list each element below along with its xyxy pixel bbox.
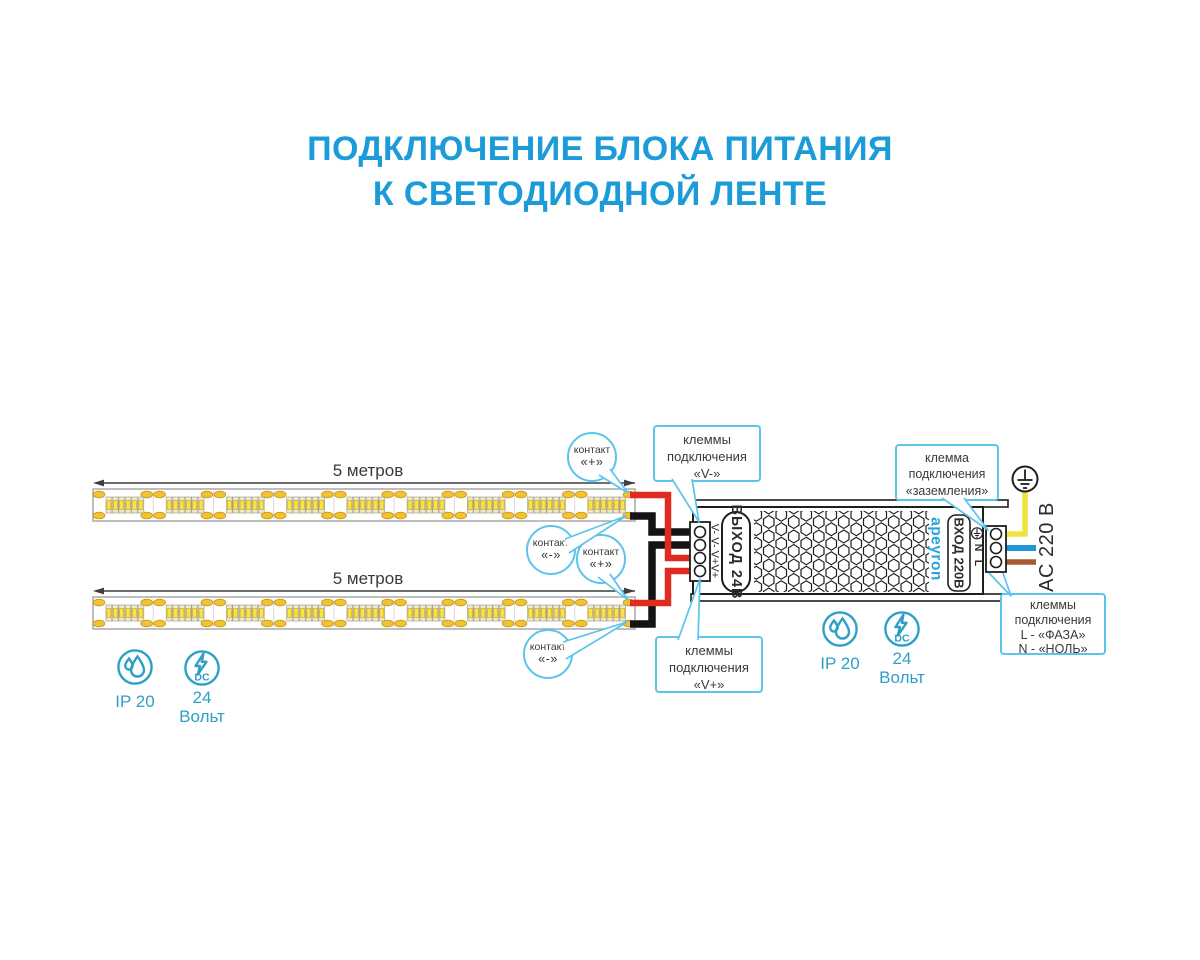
terminal-v-plus-2: [695, 566, 706, 577]
callout-text: подключения: [657, 659, 761, 676]
led-chip: [246, 605, 252, 621]
led-chip: [594, 605, 600, 621]
led-chip: [553, 497, 559, 513]
callout-contact-plus-2: контакт «+»: [576, 534, 626, 584]
led-chip: [620, 497, 626, 513]
led-chip: [528, 497, 534, 513]
led-chip: [487, 497, 493, 513]
led-chip: [553, 605, 559, 621]
led-chip: [601, 605, 607, 621]
led-chip: [106, 497, 112, 513]
led-chip: [252, 605, 258, 621]
led-chip: [312, 605, 318, 621]
terminal-v-minus-2: [695, 540, 706, 551]
led-chip: [192, 497, 198, 513]
solder-pad: [335, 620, 347, 627]
callout-text: подключения: [897, 466, 997, 482]
callout-text: «-»: [541, 549, 561, 563]
solder-pad: [154, 512, 166, 519]
led-chip: [547, 497, 553, 513]
led-chip: [594, 497, 600, 513]
dimension-strip-1: 5 метров: [93, 461, 635, 486]
led-chip: [226, 605, 232, 621]
solder-pad: [395, 491, 407, 498]
led-chip: [426, 497, 432, 513]
callout-text: «V+»: [657, 676, 761, 693]
led-chip: [306, 497, 312, 513]
led-chip: [601, 497, 607, 513]
callout-terminals-phase-null: клеммы подключения L - «ФАЗА» N - «НОЛЬ»: [1000, 593, 1106, 655]
callout-text: «+»: [590, 558, 613, 572]
psu-vent-grille: [754, 511, 929, 592]
solder-pad: [455, 620, 467, 627]
dc-label: DC: [894, 633, 910, 645]
led-chip: [306, 605, 312, 621]
led-chip: [319, 605, 325, 621]
voltage-unit-label: Вольт: [179, 708, 225, 727]
solder-pad: [93, 620, 105, 627]
led-chip: [287, 605, 293, 621]
callout-text: «-»: [538, 653, 558, 667]
led-chip: [179, 497, 185, 513]
water-drop-icon: [821, 610, 859, 648]
led-chip: [198, 497, 204, 513]
ip-rating-label: IP 20: [820, 654, 859, 674]
led-chip: [138, 605, 144, 621]
led-chip: [319, 497, 325, 513]
callout-text: клеммы: [655, 431, 759, 448]
led-chip: [353, 605, 359, 621]
terminal-n: [991, 543, 1002, 554]
callout-contact-plus-1: контакт «+»: [567, 432, 617, 482]
led-chip: [293, 497, 299, 513]
led-chip: [366, 605, 372, 621]
led-chip: [132, 497, 138, 513]
solder-pad: [214, 599, 226, 606]
led-chip: [493, 497, 499, 513]
badge-ip20-strip: IP 20: [99, 648, 171, 712]
callout-text: клемма: [897, 450, 997, 466]
solder-pad: [93, 491, 105, 498]
led-chip: [166, 497, 172, 513]
solder-pad: [515, 599, 527, 606]
solder-pad: [154, 599, 166, 606]
callout-text: N - «НОЛЬ»: [1002, 642, 1104, 657]
callout-text: L - «ФАЗА»: [1002, 628, 1104, 643]
voltage-label: 24: [179, 689, 225, 708]
callout-text: клеммы: [657, 642, 761, 659]
solder-pad: [154, 491, 166, 498]
psu-brand-logo: apeyron: [928, 517, 945, 581]
led-chip: [439, 497, 445, 513]
solder-pad: [335, 599, 347, 606]
led-chip: [433, 605, 439, 621]
led-chip: [607, 605, 613, 621]
callout-terminals-v-minus: клеммы подключения «V-»: [653, 425, 761, 482]
led-chip: [420, 605, 426, 621]
led-chip: [353, 497, 359, 513]
led-chip: [287, 497, 293, 513]
led-chip: [607, 497, 613, 513]
badge-24v-strip: DC 24 Вольт: [166, 649, 238, 726]
led-chip: [420, 497, 426, 513]
solder-pad: [154, 620, 166, 627]
led-chip: [467, 497, 473, 513]
solder-pad: [274, 620, 286, 627]
page-title: ПОДКЛЮЧЕНИЕ БЛОКА ПИТАНИЯ К СВЕТОДИОДНОЙ…: [0, 127, 1200, 217]
solder-pad: [335, 512, 347, 519]
led-chip: [547, 605, 553, 621]
led-chip: [125, 605, 131, 621]
led-chip: [620, 605, 626, 621]
led-chip: [166, 605, 172, 621]
led-chip: [246, 497, 252, 513]
led-chip: [540, 497, 546, 513]
led-chip: [414, 497, 420, 513]
led-chip: [347, 497, 353, 513]
led-chip: [226, 497, 232, 513]
led-strip-2: [93, 597, 635, 629]
led-chip: [426, 605, 432, 621]
wire-ground: [1004, 492, 1025, 534]
led-chip: [119, 605, 125, 621]
solder-pad: [395, 599, 407, 606]
solder-pad: [576, 620, 588, 627]
ip-rating-label: IP 20: [115, 692, 154, 712]
led-chip: [192, 605, 198, 621]
led-chip: [252, 497, 258, 513]
led-chip: [499, 497, 505, 513]
voltage-unit-label: Вольт: [879, 669, 925, 688]
led-chip: [414, 605, 420, 621]
led-chip: [499, 605, 505, 621]
led-chip: [173, 605, 179, 621]
solder-pad: [93, 512, 105, 519]
solder-pad: [395, 620, 407, 627]
led-chip: [106, 605, 112, 621]
led-chip: [373, 605, 379, 621]
led-chip: [467, 605, 473, 621]
led-chip: [439, 605, 445, 621]
terminal-v-plus-1: [695, 553, 706, 564]
led-chip: [233, 605, 239, 621]
terminal-earth: [991, 529, 1002, 540]
led-chip: [300, 497, 306, 513]
led-chip: [588, 605, 594, 621]
led-chip: [112, 605, 118, 621]
led-chip: [379, 497, 385, 513]
led-chip: [258, 605, 264, 621]
wire-minus-strip1: [630, 516, 692, 532]
led-chip: [613, 497, 619, 513]
led-chip: [493, 605, 499, 621]
led-chip: [379, 605, 385, 621]
psu-input-label: ВХОД 220В: [952, 517, 967, 588]
led-chip: [293, 605, 299, 621]
solder-pad: [274, 491, 286, 498]
led-chip: [233, 497, 239, 513]
led-chip: [239, 497, 245, 513]
led-chip: [185, 605, 191, 621]
callout-text: подключения: [655, 448, 759, 465]
solder-pad: [576, 512, 588, 519]
solder-pad: [274, 512, 286, 519]
led-chip: [366, 497, 372, 513]
led-chip: [360, 605, 366, 621]
solder-pad: [335, 491, 347, 498]
water-drop-icon: [116, 648, 154, 686]
led-chip: [173, 497, 179, 513]
solder-pad: [576, 599, 588, 606]
solder-pad: [515, 620, 527, 627]
callout-text: «V-»: [655, 465, 759, 482]
led-chip: [132, 605, 138, 621]
solder-pad: [455, 491, 467, 498]
terminal-l-label: L: [972, 560, 984, 567]
led-chip: [588, 497, 594, 513]
solder-pad: [576, 491, 588, 498]
solder-pad: [214, 491, 226, 498]
led-chip: [407, 605, 413, 621]
dc-label: DC: [194, 672, 210, 684]
led-chip: [360, 497, 366, 513]
led-chip: [540, 605, 546, 621]
badge-24v-psu: DC 24 Вольт: [866, 610, 938, 687]
wire-plus-strip2: [630, 571, 692, 603]
led-chip: [528, 605, 534, 621]
callout-terminal-ground: клемма подключения «заземления»: [895, 444, 999, 501]
led-chip: [179, 605, 185, 621]
led-chip: [119, 497, 125, 513]
led-chip: [125, 497, 131, 513]
led-chip: [112, 497, 118, 513]
led-chip: [480, 497, 486, 513]
terminal-v-minus-1: [695, 527, 706, 538]
callout-contact-minus-1: контакт «-»: [526, 525, 576, 575]
callout-text: «+»: [581, 456, 604, 470]
led-chip: [474, 497, 480, 513]
solder-pad: [515, 491, 527, 498]
led-chip: [534, 605, 540, 621]
led-chip: [258, 497, 264, 513]
led-chip: [407, 497, 413, 513]
power-supply-unit: ВЫХОД 24В V- V- V+V+ apeyron ВХОД 220В N…: [690, 492, 1036, 601]
led-chip: [312, 497, 318, 513]
led-chip: [373, 497, 379, 513]
solder-pad: [274, 599, 286, 606]
earth-symbol: [1013, 467, 1038, 492]
led-chip: [138, 497, 144, 513]
callout-text: клеммы: [1002, 598, 1104, 613]
dc-voltage-icon: DC: [183, 649, 221, 687]
solder-pad: [214, 620, 226, 627]
title-line-2: К СВЕТОДИОДНОЙ ЛЕНТЕ: [0, 172, 1200, 217]
callout-terminals-v-plus: клеммы подключения «V+»: [655, 636, 763, 693]
led-chip: [487, 605, 493, 621]
dc-wires: [630, 495, 692, 624]
solder-pad: [515, 512, 527, 519]
led-chip: [474, 605, 480, 621]
callout-contact-minus-2: контакт «-»: [523, 629, 573, 679]
solder-pad: [214, 512, 226, 519]
solder-pad: [93, 599, 105, 606]
led-chip: [347, 605, 353, 621]
callout-text: «заземления»: [897, 483, 997, 499]
psu-output-label: ВЫХОД 24В: [728, 504, 744, 599]
dc-voltage-icon: DC: [883, 610, 921, 648]
terminal-n-label: N: [972, 544, 984, 552]
ac-220v-label: AC 220 В: [1036, 502, 1058, 592]
title-line-1: ПОДКЛЮЧЕНИЕ БЛОКА ПИТАНИЯ: [0, 127, 1200, 172]
led-strip-1: [93, 489, 635, 521]
solder-pad: [395, 512, 407, 519]
led-chip: [534, 497, 540, 513]
led-chip: [185, 497, 191, 513]
callout-text: подключения: [1002, 613, 1104, 628]
voltage-label: 24: [879, 650, 925, 669]
strip-2-length-label: 5 метров: [333, 569, 403, 588]
led-chip: [480, 605, 486, 621]
solder-pad: [455, 599, 467, 606]
solder-pad: [455, 512, 467, 519]
led-chip: [198, 605, 204, 621]
led-chip: [613, 605, 619, 621]
led-chip: [433, 497, 439, 513]
led-chip: [560, 497, 566, 513]
led-chip: [239, 605, 245, 621]
terminal-l: [991, 557, 1002, 568]
strip-1-length-label: 5 метров: [333, 461, 403, 480]
led-chip: [560, 605, 566, 621]
led-chip: [300, 605, 306, 621]
